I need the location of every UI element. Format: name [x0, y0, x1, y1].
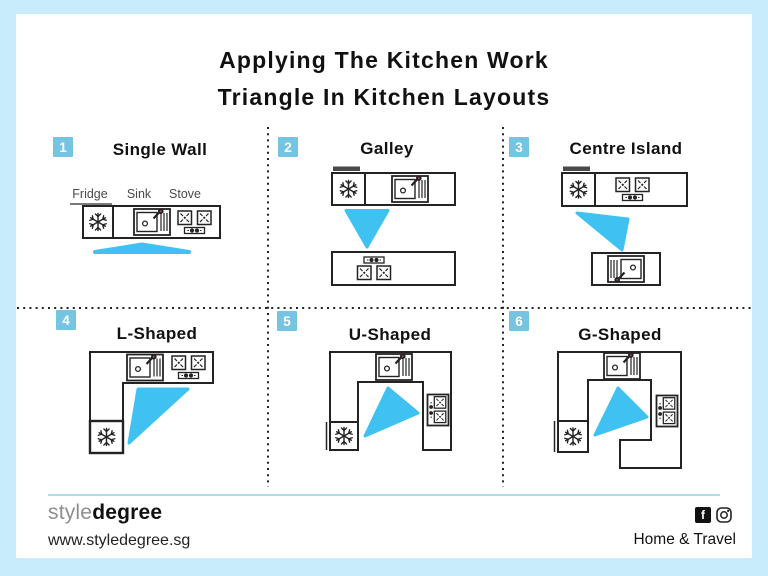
panel-single-wall: 1 Single Wall Fridge Sink Stove: [16, 120, 268, 308]
facebook-icon: f: [695, 507, 711, 523]
panel-title: Single Wall: [113, 140, 207, 160]
website-url: www.styledegree.sg: [48, 532, 190, 550]
panel-galley: 2 Galley: [268, 120, 503, 308]
footer-category: Home & Travel: [633, 531, 736, 549]
brand-light-part: style: [48, 501, 92, 524]
panel-l-shaped: 4 L-Shaped: [16, 308, 268, 490]
panel-u-shaped: 5 U-Shaped: [268, 308, 503, 490]
fridge-label: Fridge: [72, 187, 107, 201]
brand-logo: styledegree: [48, 501, 162, 525]
title-line-2: Triangle In Kitchen Layouts: [0, 79, 768, 116]
panel-number-badge: 6: [509, 311, 529, 331]
infographic-page: Applying The Kitchen Work Triangle In Ki…: [0, 0, 768, 576]
panel-title: U-Shaped: [349, 325, 432, 345]
panel-g-shaped: 6 G-Shaped: [503, 308, 752, 490]
panel-title: Centre Island: [570, 139, 683, 159]
panel-title: G-Shaped: [578, 325, 662, 345]
panel-number-badge: 5: [277, 311, 297, 331]
panel-number-badge: 2: [278, 137, 298, 157]
panel-number-badge: 1: [53, 137, 73, 157]
panel-title: Galley: [360, 139, 413, 159]
footer-divider: [48, 494, 720, 496]
panel-number-badge: 3: [509, 137, 529, 157]
panel-title: L-Shaped: [117, 324, 198, 344]
instagram-icon: [716, 507, 732, 523]
page-title: Applying The Kitchen Work Triangle In Ki…: [0, 42, 768, 116]
footer: styledegree www.styledegree.sg f Home & …: [48, 494, 736, 556]
title-line-1: Applying The Kitchen Work: [0, 42, 768, 79]
stove-label: Stove: [169, 187, 201, 201]
fridge-label-underline: [70, 203, 112, 205]
panel-number-badge: 4: [56, 310, 76, 330]
brand-bold-part: degree: [92, 501, 162, 524]
sink-label: Sink: [127, 187, 151, 201]
panel-centre-island: 3 Centre Island: [503, 120, 752, 308]
